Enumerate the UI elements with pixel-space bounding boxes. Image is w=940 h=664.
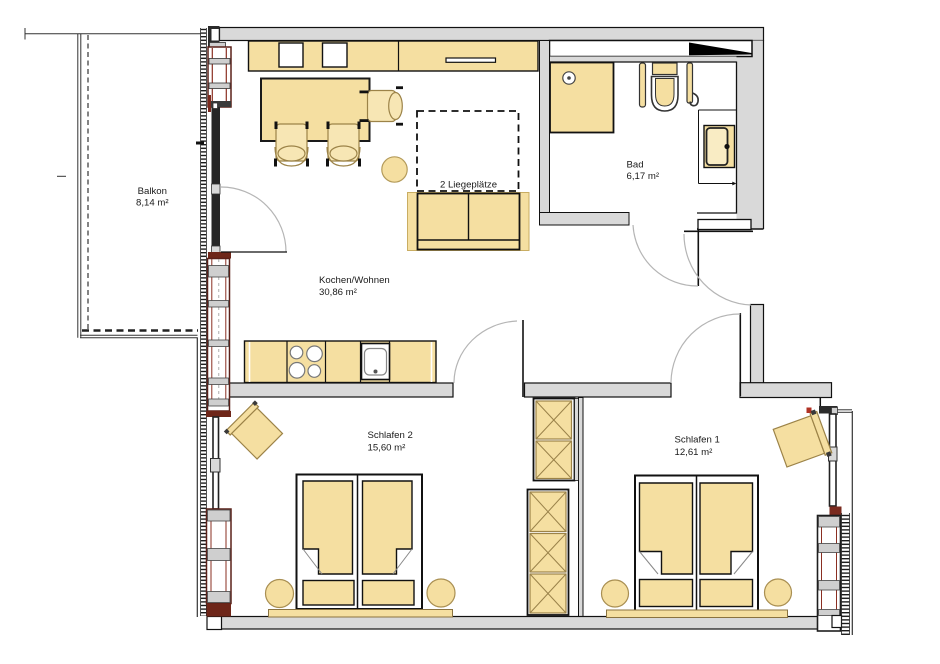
svg-text:30,86 m²: 30,86 m² xyxy=(319,287,358,298)
svg-text:2 Liegeplätze: 2 Liegeplätze xyxy=(440,180,497,191)
svg-text:Kochen/Wohnen: Kochen/Wohnen xyxy=(319,275,390,286)
svg-text:15,60 m²: 15,60 m² xyxy=(368,443,407,454)
svg-text:12,61 m²: 12,61 m² xyxy=(675,447,714,458)
svg-text:Balkon: Balkon xyxy=(138,186,167,197)
svg-text:Schlafen 2: Schlafen 2 xyxy=(368,430,413,441)
svg-text:Bad: Bad xyxy=(627,160,644,171)
svg-text:Schlafen 1: Schlafen 1 xyxy=(675,435,720,446)
svg-text:6,17 m²: 6,17 m² xyxy=(627,171,660,182)
svg-text:8,14 m²: 8,14 m² xyxy=(136,198,169,209)
